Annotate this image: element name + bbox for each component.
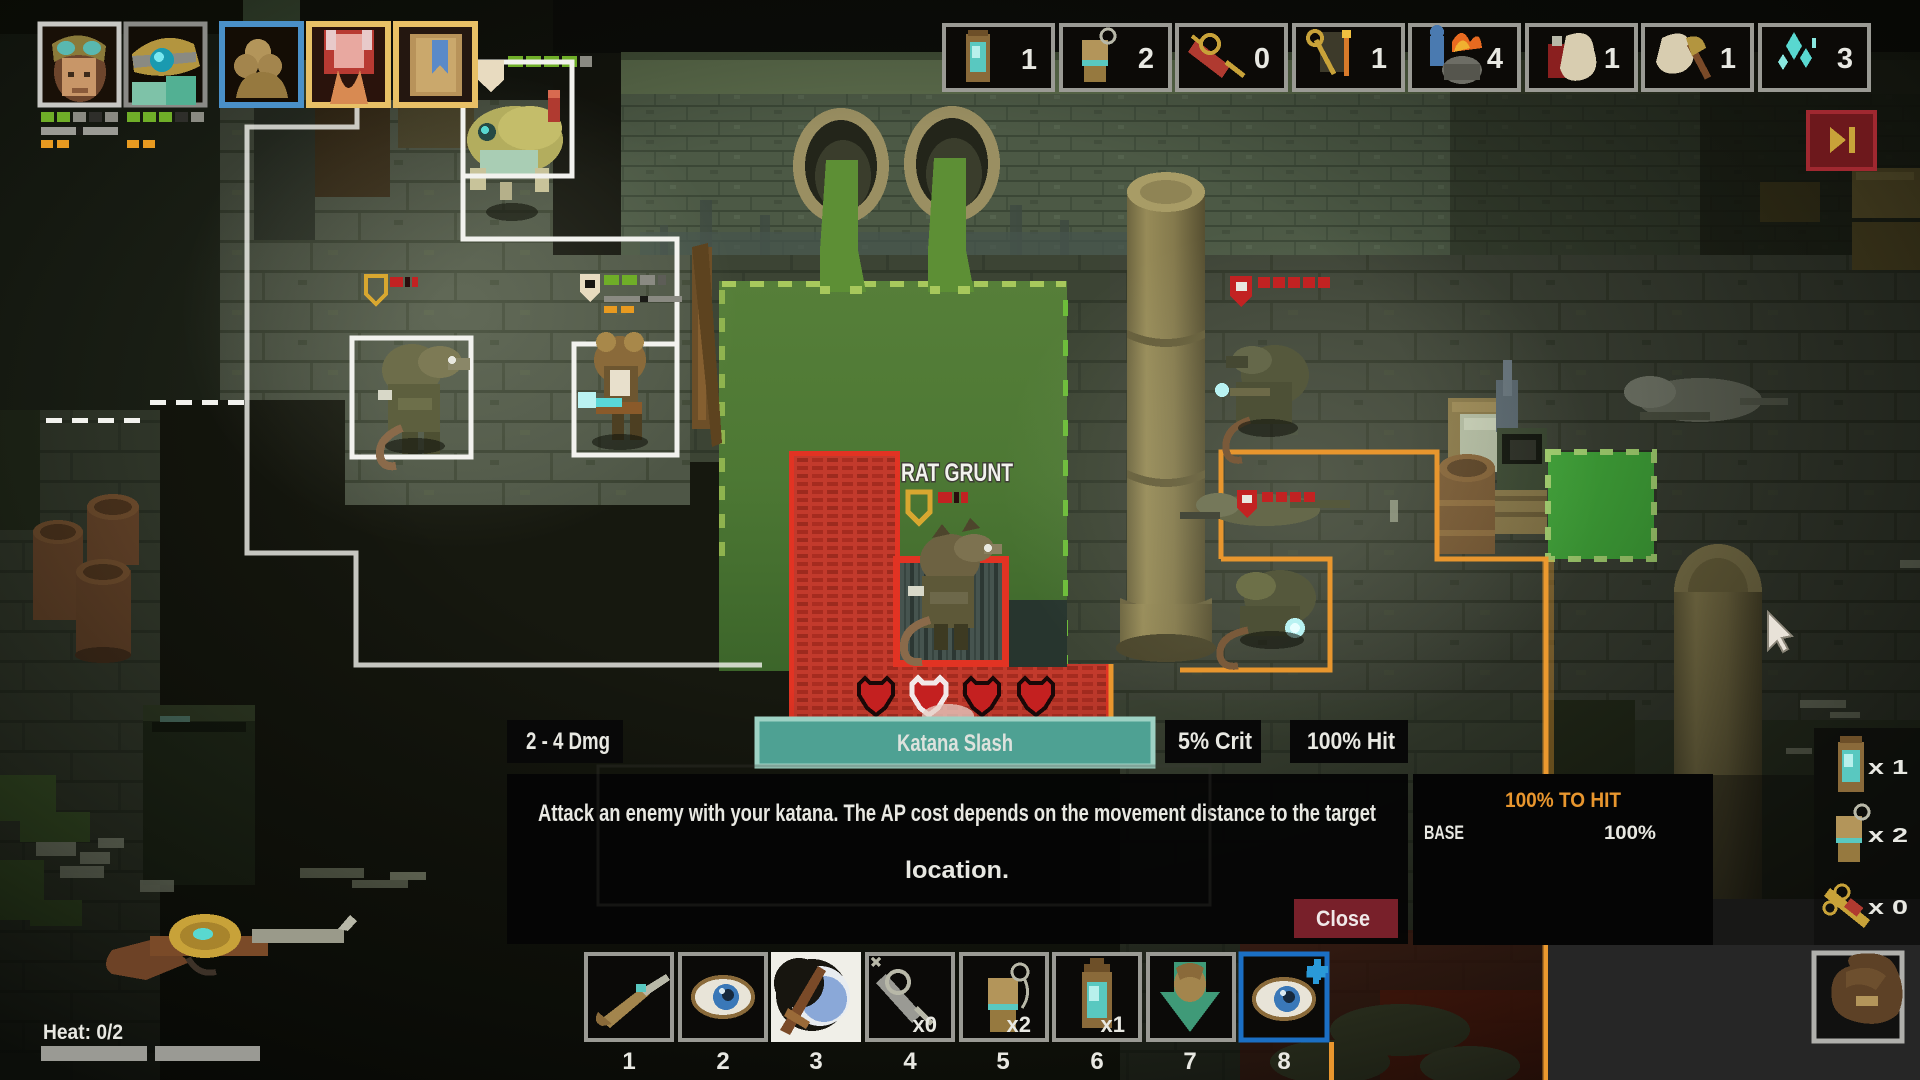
svg-text:100% TO HIT: 100% TO HIT <box>1505 789 1621 812</box>
svg-text:Attack an enemy with your kata: Attack an enemy with your katana. The AP… <box>538 800 1376 827</box>
svg-text:100%: 100% <box>1604 823 1656 844</box>
svg-text:Katana Slash: Katana Slash <box>897 730 1013 757</box>
svg-text:3: 3 <box>1837 43 1853 75</box>
svg-text:2 - 4 Dmg: 2 - 4 Dmg <box>526 728 610 755</box>
svg-text:BASE: BASE <box>1424 823 1464 844</box>
svg-text:Heat: 0/2: Heat: 0/2 <box>43 1021 123 1044</box>
svg-text:1: 1 <box>1371 43 1387 75</box>
svg-text:3: 3 <box>809 1048 822 1075</box>
svg-text:5: 5 <box>996 1048 1009 1075</box>
svg-text:2: 2 <box>1138 43 1154 75</box>
svg-text:x 0: x 0 <box>1868 897 1908 919</box>
svg-text:6: 6 <box>1090 1048 1103 1075</box>
svg-text:8: 8 <box>1277 1048 1290 1075</box>
svg-text:4: 4 <box>1487 43 1503 75</box>
svg-text:x 2: x 2 <box>1868 825 1908 847</box>
svg-text:5% Crit: 5% Crit <box>1178 728 1252 755</box>
svg-text:7: 7 <box>1183 1048 1196 1075</box>
svg-text:1: 1 <box>1021 44 1037 76</box>
svg-text:x1: x1 <box>1101 1012 1125 1037</box>
svg-text:0: 0 <box>1254 43 1270 75</box>
svg-text:100% Hit: 100% Hit <box>1307 728 1395 755</box>
svg-text:Close: Close <box>1316 906 1370 931</box>
svg-text:x2: x2 <box>1007 1012 1031 1037</box>
svg-text:x0: x0 <box>913 1012 937 1037</box>
svg-text:x 1: x 1 <box>1868 757 1908 779</box>
svg-text:1: 1 <box>622 1048 635 1075</box>
svg-text:1: 1 <box>1720 43 1736 75</box>
svg-text:RAT GRUNT: RAT GRUNT <box>901 459 1013 487</box>
svg-text:2: 2 <box>716 1048 729 1075</box>
svg-text:location.: location. <box>905 857 1009 884</box>
svg-text:4: 4 <box>903 1048 917 1075</box>
svg-text:1: 1 <box>1604 43 1620 75</box>
